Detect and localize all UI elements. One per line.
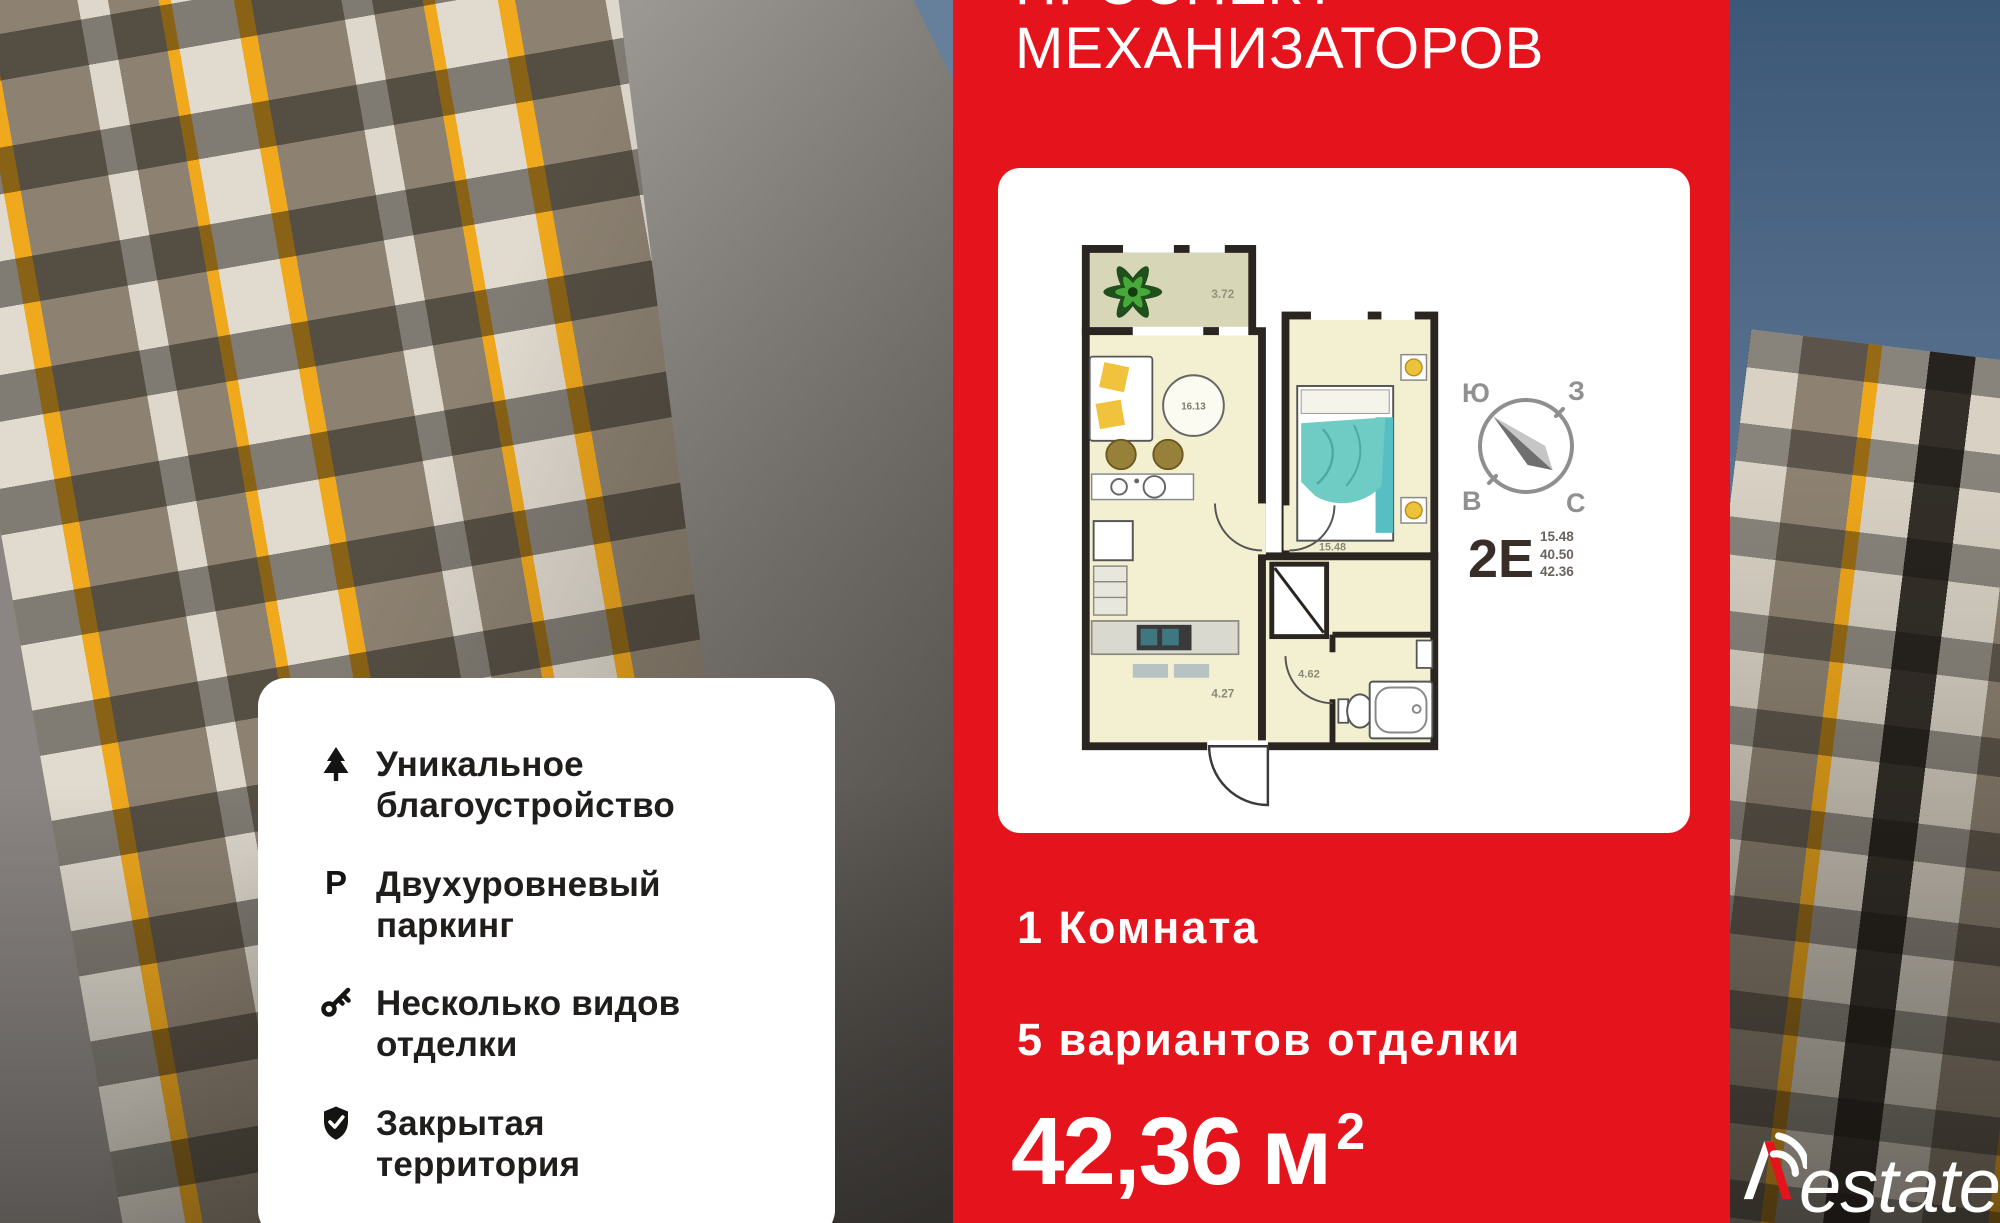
restate-logo-text: estate [1799,1151,2000,1223]
bathtub [1370,682,1433,739]
complex-title-line1-clipped: ПРОСПЕКТ [1015,0,1339,14]
facade-shadow-right [1730,0,2000,1223]
chair [1106,440,1135,469]
kitchen-living-area-label: 16.13 [1181,401,1206,412]
area-value: 42,36 [1011,1104,1241,1200]
entry-door-arc [1209,746,1268,805]
rooms-count-line: 1 Комната [1017,902,1259,954]
area-unit: м [1261,1104,1332,1200]
living-door-gap [1254,503,1266,554]
bedroom-door-gap [1284,505,1296,550]
bedroom-area-label: 15.48 [1319,541,1346,553]
area-stack: 15.48 40.50 42.36 [1540,528,1574,581]
bedroom: 15.48 [1285,311,1434,556]
feature-label: Несколько видов отделки [376,983,716,1066]
chair [1153,440,1182,469]
compass-south: Ю [1462,380,1490,407]
shield-check-icon [318,1103,354,1186]
parking-icon: Р [318,864,354,947]
wardrobe [1272,564,1327,636]
parking-glyph: Р [325,866,347,947]
washbasin [1417,641,1433,668]
bathroom-area-label: 4.62 [1298,669,1320,681]
sofa [1090,357,1153,441]
bed [1297,386,1393,541]
compass-needle [1485,407,1562,480]
restate-logo-mark [1736,1105,1807,1223]
loggia-area-label: 3.72 [1211,288,1234,301]
feature-label: Уникальное благоустройство [376,744,716,827]
sink-counter [1092,474,1194,499]
toilet [1338,694,1372,727]
loggia: 3.72 [1086,244,1252,331]
nightstand [1401,498,1426,523]
area-no-loggia: 40.50 [1540,546,1574,564]
floor-plan-card: 3.72 16.13 [998,168,1690,833]
features-card: Уникальное благоустройство Р Двухуровнев… [258,678,835,1223]
kitchen-mat [1174,664,1209,678]
hallway-area-label: 4.27 [1211,687,1234,700]
tree-icon [318,744,354,827]
kitchen-living-room: 16.13 [1086,327,1262,746]
feature-label: Закрытая территория [376,1103,716,1186]
nightstand [1401,355,1426,380]
feature-label: Двухуровневый паркинг [376,864,716,947]
area-exponent: 2 [1336,1106,1365,1158]
feature-item: Уникальное благоустройство [318,744,835,827]
compass-icon: Ю З В С [1438,358,1614,534]
kitchen-cabinets [1094,566,1127,615]
total-area: 42.36 [1540,563,1574,581]
total-area-line: 42,36 м 2 [1011,1104,1365,1200]
red-panel: ПРОСПЕКТ МЕХАНИЗАТОРОВ 1 Комната 5 вариа… [953,0,1730,1223]
feature-item: Закрытая территория [318,1103,835,1186]
compass-north: С [1566,490,1586,517]
kitchen-mat [1133,664,1168,678]
complex-title-line2: МЕХАНИЗАТОРОВ [1015,20,1544,78]
bathroom-door-gap [1327,652,1339,699]
key-icon [318,983,354,1066]
feature-item: Р Двухуровневый паркинг [318,864,835,947]
compass-west: З [1568,378,1585,405]
fridge [1094,521,1133,560]
floor-plan: 3.72 16.13 [1076,240,1448,810]
living-area: 15.48 [1540,528,1574,546]
building-photo-right [1730,0,2000,1223]
feature-item: Несколько видов отделки [318,983,835,1066]
cooktop-counter [1092,621,1239,654]
finish-options-line: 5 вариантов отделки [1017,1014,1521,1066]
restate-logo: estate [1736,1096,2000,1223]
real-estate-ad-banner: Уникальное благоустройство Р Двухуровнев… [0,0,2000,1223]
flat-type-label: 2Е [1468,532,1534,586]
compass-east: В [1462,488,1482,515]
